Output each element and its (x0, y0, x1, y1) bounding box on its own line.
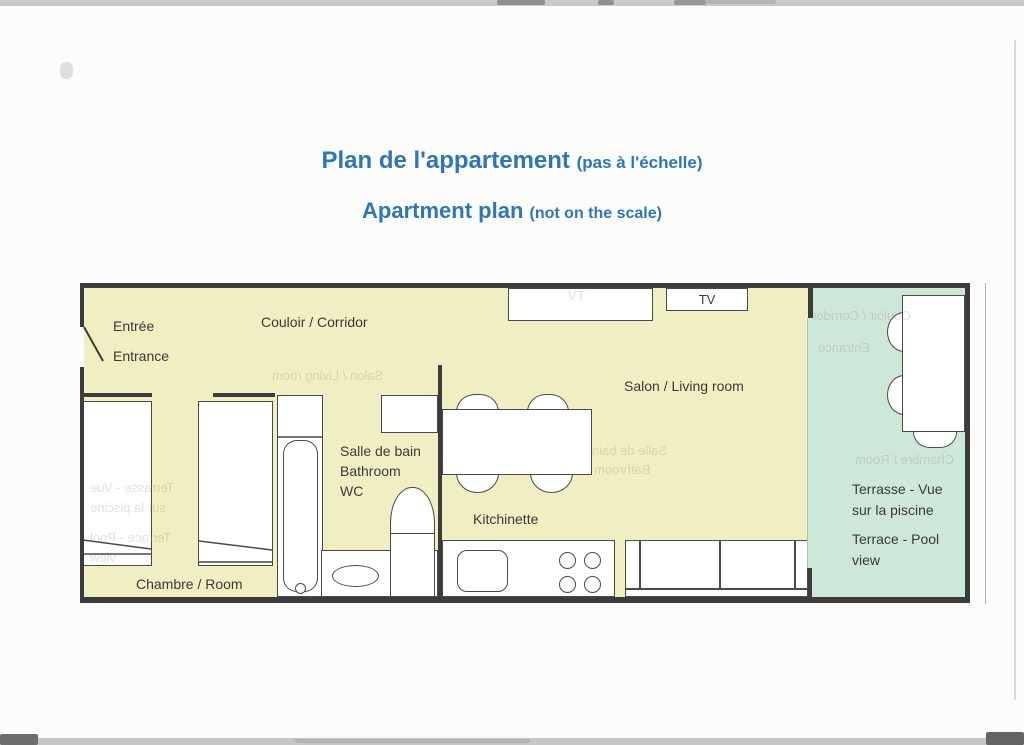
scan-smudge (295, 739, 530, 743)
title-fr-main: Plan de l'appartement (321, 147, 569, 174)
wall-right (965, 283, 970, 603)
label-terrace-fr-2: sur la piscine (852, 500, 943, 521)
title-en-note: (not on the scale) (530, 205, 662, 222)
wall-bedroom (80, 393, 152, 397)
label-bathroom: Salle de bain Bathroom WC (340, 441, 421, 501)
bed-fold-line (199, 541, 272, 550)
scan-smudge (674, 0, 706, 5)
wall-left (80, 367, 84, 603)
entrance-door-swing (84, 327, 103, 361)
wall-terrace-divider (808, 568, 812, 603)
scanned-floor-plan-page: Plan de l'appartement (pas à l'échelle) … (0, 0, 1024, 745)
label-bathroom-en: Bathroom (340, 461, 421, 481)
label-living-room: Salon / Living room (624, 378, 744, 394)
label-entrance-en: Entrance (113, 348, 169, 364)
bed-fold-line (83, 540, 151, 549)
label-terrace-fr-1: Terrasse - Vue (852, 479, 943, 500)
scan-smudge (986, 732, 1024, 745)
label-kitchenette: Kitchinette (473, 511, 538, 527)
label-wc: WC (340, 481, 421, 501)
title-fr-note: (pas à l'échelle) (577, 153, 703, 172)
scan-smudge (0, 734, 38, 745)
label-bedroom: Chambre / Room (136, 576, 243, 592)
label-terrace: Terrasse - Vue sur la piscine Terrace - … (852, 479, 943, 571)
scan-smudge (598, 0, 614, 5)
scan-streak (1014, 40, 1016, 700)
scan-smudge (497, 0, 545, 5)
page-title-english: Apartment plan (not on the scale) (0, 198, 1024, 224)
wall-top (80, 283, 970, 288)
wall-terrace-divider (808, 283, 813, 318)
wall-bedroom (213, 393, 275, 397)
label-bathroom-fr: Salle de bain (340, 441, 421, 461)
wall-bathroom (438, 365, 442, 603)
label-terrace-en-1: Terrace - Pool (852, 529, 943, 550)
label-corridor: Couloir / Corridor (261, 314, 368, 330)
title-en-main: Apartment plan (362, 198, 523, 223)
floor-plan: TV (80, 283, 970, 603)
scan-faint-line (985, 283, 986, 604)
scan-smudge (706, 0, 776, 4)
wall-left (80, 283, 84, 327)
page-title-french: Plan de l'appartement (pas à l'échelle) (0, 147, 1024, 175)
label-entrance-fr: Entrée (113, 318, 154, 334)
label-terrace-en-2: view (852, 550, 943, 571)
wall-bottom (80, 597, 970, 603)
scan-smudge (60, 62, 73, 79)
plan-lines (80, 283, 970, 603)
